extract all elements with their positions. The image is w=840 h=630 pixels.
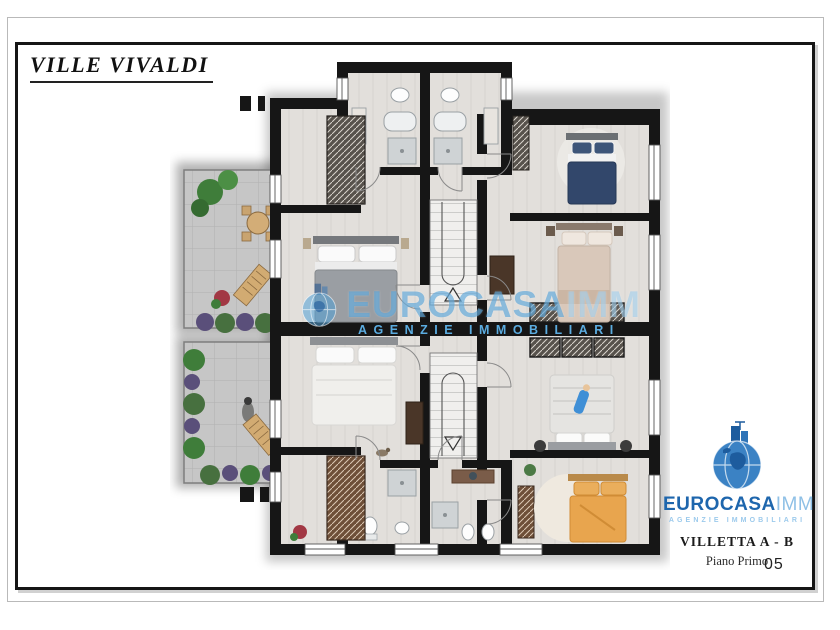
bed-white bbox=[310, 337, 398, 425]
logo-brand: EUROCASAIMM bbox=[663, 494, 811, 516]
staircase-b bbox=[430, 353, 477, 458]
floor-plan-page: VILLE VIVALDI bbox=[0, 0, 840, 630]
logo-globe-icon bbox=[705, 420, 769, 492]
unit-label: VILLETTA A - B bbox=[663, 534, 811, 550]
floor-label: Piano Primo bbox=[663, 554, 811, 569]
agency-logo-block: EUROCASAIMM AGENZIE IMMOBILIARI VILLETTA… bbox=[663, 420, 811, 569]
floor-plan-drawing bbox=[170, 50, 670, 570]
logo-tagline: AGENZIE IMMOBILIARI bbox=[663, 517, 811, 524]
staircase-a bbox=[430, 200, 477, 305]
page-number: 05 bbox=[764, 556, 784, 574]
